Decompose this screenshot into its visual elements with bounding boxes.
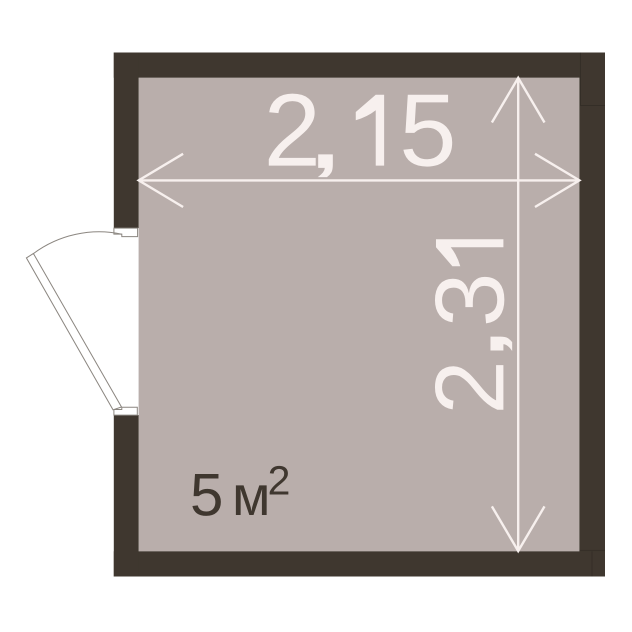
svg-text:м: м xyxy=(232,464,271,527)
svg-text:5: 5 xyxy=(190,461,223,528)
